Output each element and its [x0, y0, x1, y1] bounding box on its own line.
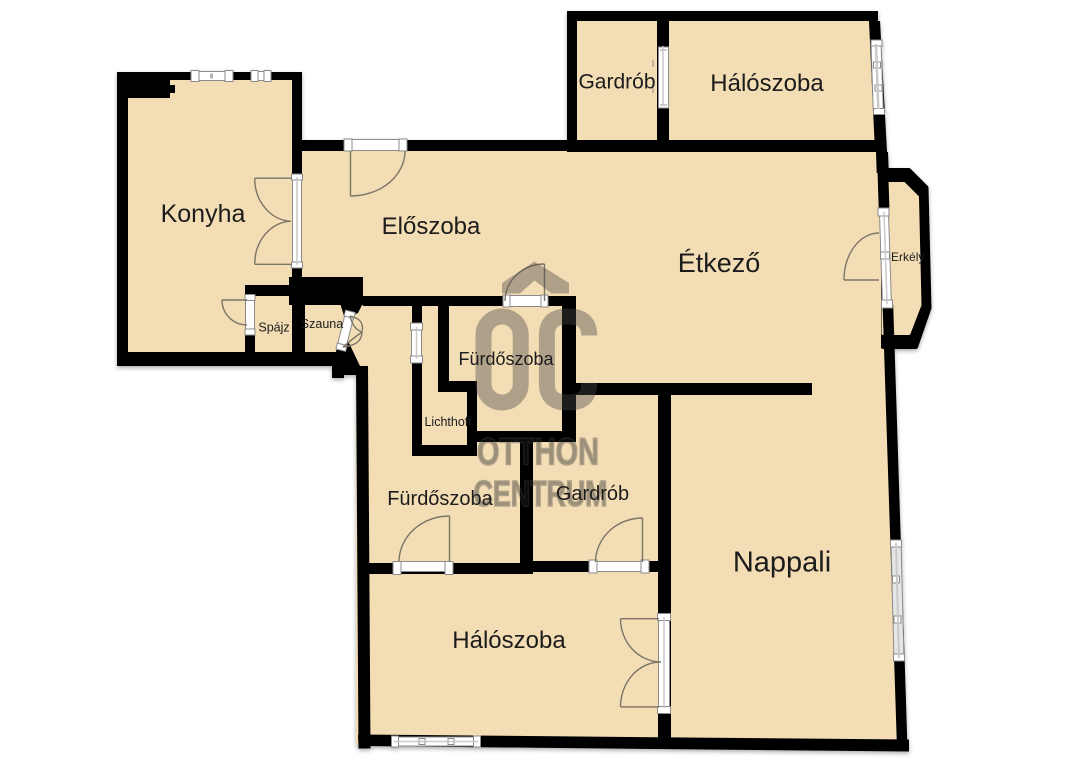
svg-text:Lichthoff: Lichthoff [424, 415, 472, 429]
svg-text:Étkező: Étkező [678, 248, 761, 278]
svg-text:Konyha: Konyha [161, 200, 246, 228]
svg-text:Erkély: Erkély [891, 250, 924, 264]
svg-text:Gardrób: Gardrób [578, 71, 655, 94]
svg-text:Szauna: Szauna [301, 317, 343, 331]
svg-text:Fürdőszoba: Fürdőszoba [387, 488, 493, 510]
svg-text:Hálószoba: Hálószoba [452, 627, 566, 654]
svg-text:Nappali: Nappali [733, 547, 831, 579]
svg-text:Gardrób: Gardrób [556, 483, 629, 505]
svg-text:OTTHON: OTTHON [477, 432, 599, 474]
svg-text:Spájz: Spájz [258, 321, 289, 335]
svg-text:Hálószoba: Hálószoba [710, 70, 824, 97]
svg-text:Fürdőszoba: Fürdőszoba [458, 349, 554, 369]
svg-text:Előszoba: Előszoba [382, 213, 481, 240]
